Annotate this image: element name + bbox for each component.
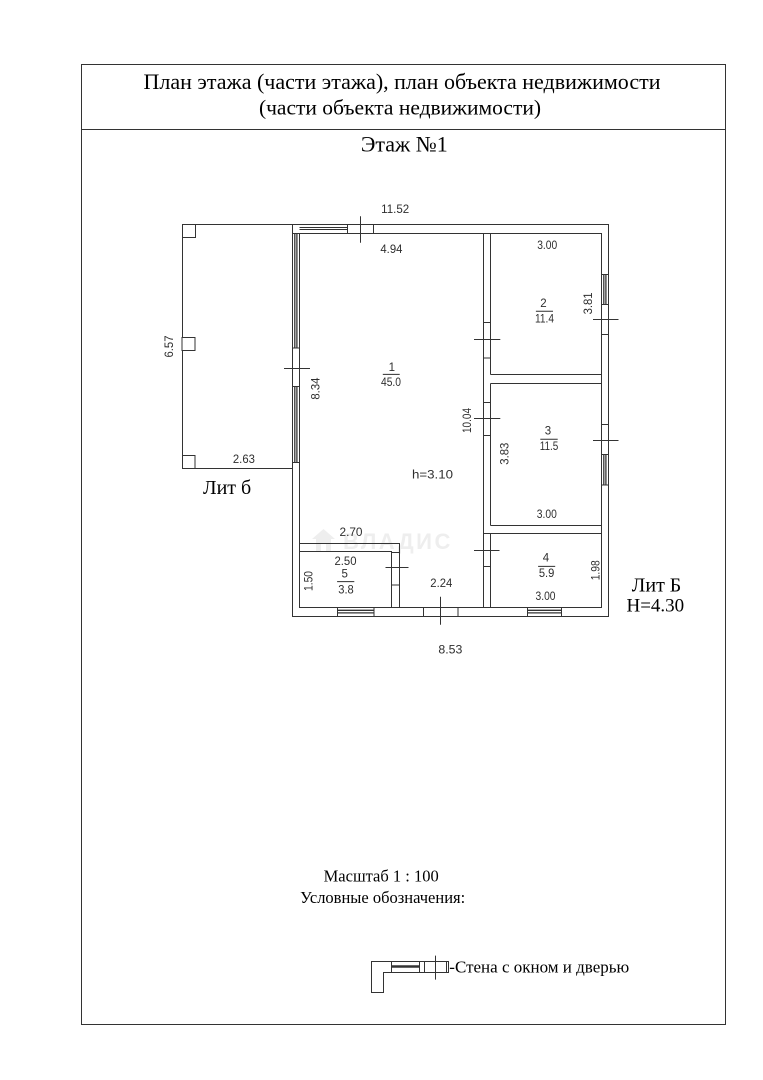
svg-text:2.50: 2.50 [335, 556, 357, 568]
svg-text:6.57: 6.57 [164, 336, 176, 358]
svg-text:Этаж №1: Этаж №1 [361, 131, 448, 156]
svg-text:3.00: 3.00 [537, 240, 557, 252]
svg-text:2.63: 2.63 [233, 454, 255, 466]
svg-text:Лит Б: Лит Б [632, 575, 682, 597]
svg-text:Условные обозначения:: Условные обозначения: [300, 888, 465, 907]
svg-text:5: 5 [341, 569, 347, 581]
svg-text:8.34: 8.34 [311, 377, 323, 400]
svg-text:2.24: 2.24 [430, 578, 453, 590]
svg-text:3.00: 3.00 [537, 509, 557, 521]
svg-text:h=3.10: h=3.10 [412, 470, 453, 482]
svg-text:5.9: 5.9 [539, 568, 555, 580]
svg-text:Лит б: Лит б [203, 477, 251, 499]
svg-text:Н=4.30: Н=4.30 [627, 596, 685, 617]
svg-text:2: 2 [540, 298, 546, 310]
svg-text:3.00: 3.00 [536, 591, 556, 603]
svg-text:4.94: 4.94 [380, 244, 403, 256]
svg-text:План этажа (части этажа), план: План этажа (части этажа), план объекта н… [144, 69, 661, 94]
svg-text:1: 1 [389, 362, 395, 374]
svg-text:3.8: 3.8 [338, 584, 354, 596]
svg-text:3: 3 [545, 426, 551, 438]
svg-text:1.98: 1.98 [590, 560, 602, 580]
svg-text:11.5: 11.5 [540, 441, 559, 453]
svg-text:Масштаб 1 : 100: Масштаб 1 : 100 [324, 867, 439, 886]
svg-text:3.83: 3.83 [499, 443, 511, 465]
svg-text:(части объекта недвижимости): (части объекта недвижимости) [259, 95, 541, 119]
svg-text:-Стена с окном и дверью: -Стена с окном и дверью [449, 957, 629, 976]
svg-text:4: 4 [543, 553, 550, 565]
svg-text:10.04: 10.04 [462, 407, 474, 433]
svg-text:3.81: 3.81 [583, 292, 595, 314]
svg-text:11.4: 11.4 [535, 313, 555, 325]
svg-text:45.0: 45.0 [381, 377, 401, 389]
svg-text:8.53: 8.53 [438, 645, 462, 657]
svg-text:1.50: 1.50 [304, 571, 316, 591]
svg-text:2.70: 2.70 [340, 527, 363, 539]
svg-text:11.52: 11.52 [381, 204, 409, 216]
